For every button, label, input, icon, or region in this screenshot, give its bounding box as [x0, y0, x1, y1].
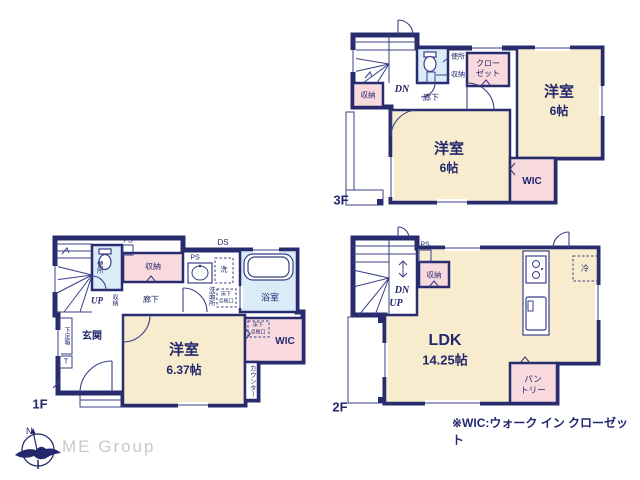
balcony-2f: [348, 317, 383, 403]
room-size: 6帖: [440, 162, 459, 174]
floor-label-2f: 2F: [332, 400, 347, 415]
pantry-label: トリー: [520, 386, 546, 395]
room-label: 洋室: [544, 85, 574, 100]
sink-icon: [526, 297, 546, 330]
toilet-label: 便所: [451, 54, 465, 61]
room-label: 洋室: [434, 142, 464, 157]
fridge-label: 冷: [581, 265, 589, 273]
storage-label: 収納: [451, 72, 465, 79]
washbasin-icon: [188, 263, 212, 283]
wic-label: WIC: [275, 337, 294, 347]
counter-label: カウンター: [248, 365, 255, 398]
stair-direction-label: UP: [91, 297, 103, 306]
company-logo-text: ME Group: [62, 437, 155, 457]
storage-label: 収納: [145, 263, 161, 271]
hall-label: 廊下: [423, 94, 439, 102]
balcony-3f: [346, 112, 383, 205]
wic-footnote: ※WIC:ウォーク イン クローゼット: [452, 414, 640, 448]
ldk-label: LDK: [429, 333, 462, 349]
toilet-label: 便所: [95, 261, 102, 274]
pantry-label: パン: [524, 375, 541, 384]
storage-label: 収納: [361, 91, 376, 99]
storage-label: 収納: [427, 271, 442, 279]
room-size: 6帖: [550, 105, 569, 117]
closet-label: クロー: [476, 60, 500, 68]
ps-label: PS: [190, 255, 199, 262]
ps-label: PS: [420, 242, 429, 249]
floor-hatch-label: 床下: [253, 324, 263, 329]
floorplan-1f-drawing: [48, 230, 310, 418]
bathtub-icon: [244, 254, 293, 280]
storage-label: 収納: [111, 294, 117, 306]
room-label: 洋室: [169, 343, 199, 358]
room-size: 6.37帖: [166, 364, 201, 376]
kitchen-counter: [523, 251, 549, 335]
shoe-box-label: 下足箱: [63, 327, 69, 345]
laundry-label: 洗: [221, 267, 228, 274]
hall-label: 廊下: [143, 296, 159, 304]
floor-hatch-label: 点検口: [218, 300, 233, 305]
shoe-box-t-label: T: [64, 359, 68, 366]
floorplan-1f: 洋室 6.37帖 玄関 下足箱 T 便所 PS PS DS 収納 収納 廊下 U…: [48, 230, 310, 418]
compass-icon: N: [12, 422, 64, 476]
floor-label-3f: 3F: [333, 193, 348, 208]
floorplan-3f: 洋室 6帖 洋室 6帖 クロー ゼット WIC 便所 収納 収納 廊下 DN: [345, 16, 607, 210]
entrance-label: 玄関: [82, 332, 102, 342]
wic-label: WIC: [522, 177, 541, 187]
stair-direction-label: DN: [395, 286, 409, 296]
washroom-label: 洗面所: [207, 286, 214, 306]
stove-icon: [526, 256, 546, 283]
room-bedroom-1f: [123, 315, 245, 405]
ds-label: DS: [217, 239, 228, 247]
stair-direction-label: DN: [395, 85, 409, 95]
floor-hatch-label: 床下: [221, 293, 231, 298]
floorplan-sheet: 洋室 6帖 洋室 6帖 クロー ゼット WIC 便所 収納 収納 廊下 DN 3…: [0, 0, 640, 480]
ldk-size: 14.25帖: [422, 354, 468, 367]
room-ldk: [385, 248, 598, 403]
closet-label: ゼット: [476, 70, 500, 78]
floorplan-2f: LDK 14.25帖 収納 パン トリー 冷 PS DN UP: [345, 225, 607, 417]
toilet-icon: [424, 52, 436, 72]
floor-label-1f: 1F: [32, 397, 47, 412]
compass-north-label: N: [26, 426, 33, 436]
floorplan-2f-drawing: [345, 225, 607, 417]
ps-label: PS: [123, 238, 132, 245]
bath-label: 浴室: [261, 294, 279, 303]
room-bedroom-right: [517, 48, 602, 158]
floor-hatch-label: 点検口: [250, 331, 265, 336]
stair-direction-label: UP: [389, 299, 402, 309]
